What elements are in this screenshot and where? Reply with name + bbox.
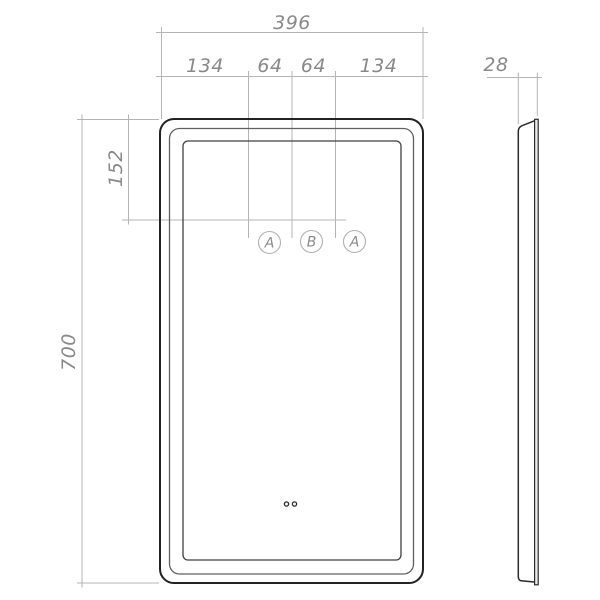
mirror-dimension-drawing: 396 134 64 64 134 28 152 700 A B A (0, 0, 600, 600)
sensor-label-center: B (307, 235, 317, 251)
side-view (518, 119, 538, 585)
dim-text-overall-width: 396 (273, 12, 311, 34)
dimension-texts: 396 134 64 64 134 28 152 700 (58, 12, 509, 371)
dim-text-sensor-offset: 152 (105, 149, 127, 187)
sensor-callouts: A B A (259, 231, 366, 254)
dim-text-seg-mid-left: 64 (257, 55, 282, 77)
side-view-body-outline (518, 121, 534, 582)
touch-indicator-dot-right (292, 502, 296, 506)
dim-text-overall-height: 700 (58, 333, 80, 371)
dim-text-seg-mid-right: 64 (301, 55, 326, 77)
side-view-glass-layer (535, 119, 539, 585)
dim-text-seg-left: 134 (186, 55, 224, 77)
sensor-label-left: A (264, 236, 275, 252)
technical-drawing-page: 396 134 64 64 134 28 152 700 A B A (0, 0, 600, 600)
dim-text-seg-right: 134 (360, 55, 398, 77)
touch-indicator-dot-left (284, 502, 288, 506)
sensor-label-right: A (349, 235, 360, 251)
dimension-lines (77, 27, 542, 588)
dim-text-depth: 28 (483, 54, 508, 76)
